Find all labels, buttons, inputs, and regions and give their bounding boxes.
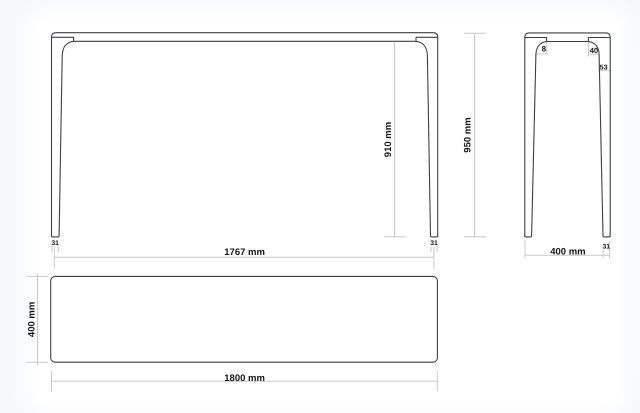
svg-text:31: 31 (51, 240, 59, 247)
svg-text:8: 8 (542, 45, 547, 54)
svg-text:910 mm: 910 mm (383, 122, 394, 157)
svg-text:53: 53 (600, 65, 608, 72)
svg-text:950 mm: 950 mm (462, 117, 473, 152)
svg-text:31: 31 (603, 243, 611, 250)
svg-text:1800 mm: 1800 mm (224, 373, 265, 384)
svg-text:40: 40 (590, 46, 598, 55)
svg-text:31: 31 (430, 240, 438, 247)
svg-text:400 mm: 400 mm (27, 302, 38, 337)
svg-text:1767 mm: 1767 mm (224, 247, 265, 258)
svg-text:400 mm: 400 mm (550, 247, 585, 258)
